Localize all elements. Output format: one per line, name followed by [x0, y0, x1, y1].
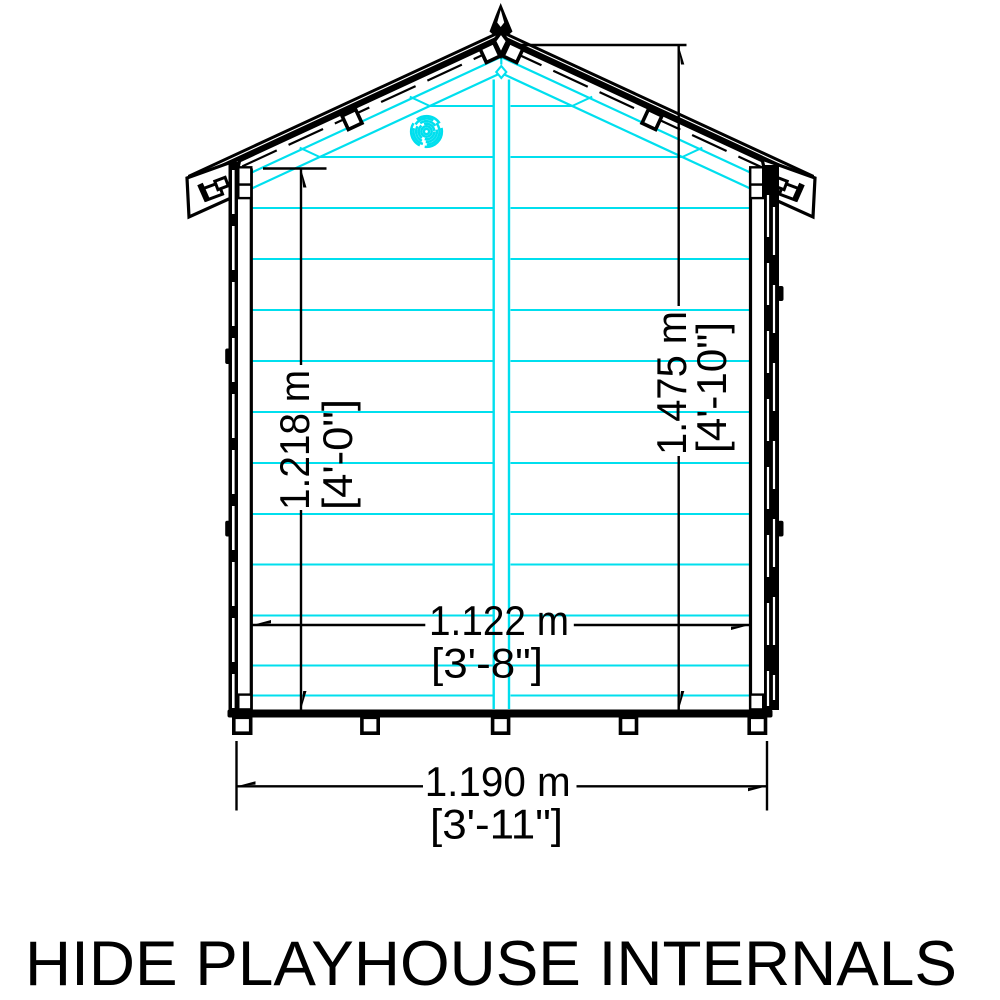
svg-text:1.122 m: 1.122 m — [429, 597, 569, 644]
svg-text:1.218 m: 1.218 m — [271, 370, 318, 510]
svg-text:[3'-11"]: [3'-11"] — [430, 801, 563, 848]
svg-text:[4'-0"]: [4'-0"] — [314, 399, 361, 510]
svg-text:1.190 m: 1.190 m — [425, 758, 571, 805]
svg-text:HIDE PLAYHOUSE INTERNALS: HIDE PLAYHOUSE INTERNALS — [25, 929, 957, 999]
svg-text:[4'-10"]: [4'-10"] — [688, 322, 735, 453]
svg-text:[3'-8"]: [3'-8"] — [431, 640, 543, 687]
